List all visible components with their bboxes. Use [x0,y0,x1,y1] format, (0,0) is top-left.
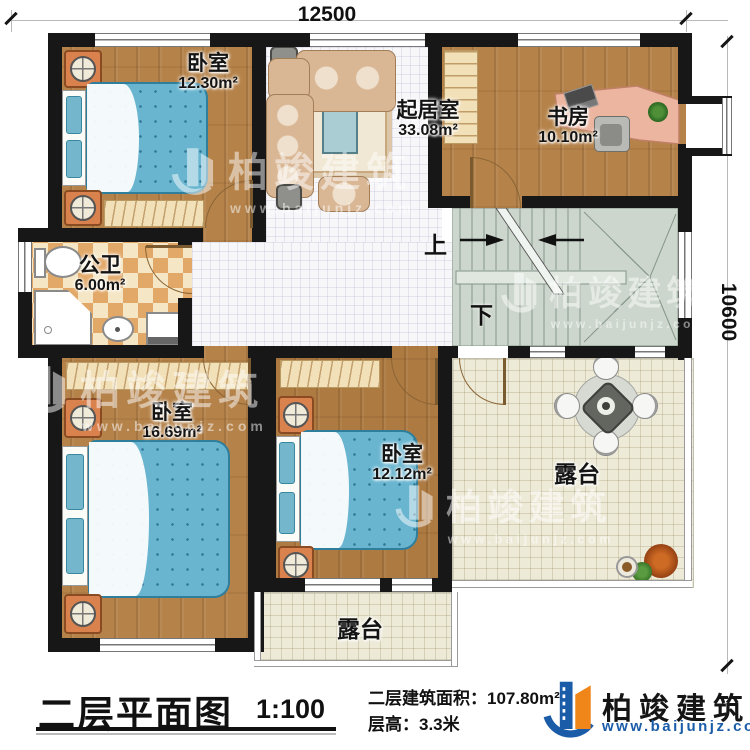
room-label-study: 书房 10.10m² [518,106,618,147]
bay-window-glass [722,98,732,154]
wall [380,578,392,592]
dimension-extension-right [686,10,687,32]
sofa-left [266,94,314,198]
stairs-down-label: 下 [470,296,493,330]
wall [428,196,470,208]
door-leaf [250,180,253,228]
room-label-bedroom-bm: 卧室 12.12m² [352,443,452,484]
wall [432,578,452,592]
pillow [66,518,84,574]
window [18,242,32,292]
window [305,578,380,592]
lamp-icon [70,56,96,82]
window [100,638,215,652]
door-leaf [146,245,192,248]
wall [178,228,192,246]
window [392,578,432,592]
nightstand [64,190,102,226]
wall [48,346,62,652]
railing [451,592,458,666]
pillow [66,454,84,510]
wall [48,33,62,242]
wall [665,346,692,358]
wall [452,346,458,358]
wall [48,638,100,652]
patio-chair [632,393,658,419]
door-leaf [470,157,473,208]
title-underline [36,727,336,731]
pillow [279,492,295,534]
lamp-icon [283,552,309,578]
wall [248,346,276,592]
wardrobe [104,200,204,227]
railing [254,592,261,666]
plant-pot-soil [622,562,632,572]
wall [262,346,392,358]
railing [254,660,458,667]
title-underline-shadow [36,733,336,735]
wall [48,346,204,358]
lamp-icon [70,601,96,627]
wall [522,196,692,208]
floor-height-info: 层高：3.3米 [368,710,460,735]
pillow [66,140,82,178]
pillow [66,96,82,134]
room-label-terrace-right: 露台 [527,462,627,487]
shower-drain [44,326,52,334]
wall [565,346,635,358]
window [678,232,692,318]
lamp-icon [283,402,309,428]
window [635,346,665,358]
bay-window-interior [686,104,724,148]
pillow [279,442,295,484]
room-label-bathroom: 公卫 6.00m² [50,254,150,295]
door-leaf [248,358,251,405]
floor-area-info: 二层建筑面积：107.80m² [368,684,560,709]
window [530,346,565,358]
armchair [318,176,370,212]
dimension-height-label: 10600 [716,272,740,352]
dimension-width-label: 12500 [277,3,377,27]
room-label-terrace-bottom: 露台 [310,617,410,642]
wall [253,228,266,242]
room-label-living: 起居室 33.08m² [378,99,478,140]
scale-label: 1:100 [256,694,325,725]
stairs-up-label: 上 [424,226,447,260]
dimension-extension-left [11,10,12,32]
wall [678,144,692,232]
door-leaf [435,358,438,405]
window [310,33,425,47]
brand-logo-icon [538,676,598,742]
patio-chair [593,430,619,456]
wall [248,578,305,592]
window [95,33,210,47]
room-label-bedroom-tl: 卧室 12.30m² [158,52,258,93]
plant-icon [648,102,668,122]
brand-url: www.baijunjz.com [602,718,750,735]
door-leaf [503,358,506,405]
bed-sheet [87,84,139,192]
wall [678,33,692,104]
lamp-icon [70,195,96,221]
sink-drain [115,327,120,332]
bed-sheet [301,432,349,548]
bed-sheet [89,442,149,596]
nightstand [64,398,102,438]
hallway-floor [192,242,452,346]
room-label-bedroom-bl: 卧室 16.69m² [122,401,222,442]
nightstand [278,396,314,434]
wardrobe [280,360,380,388]
patio-chair [554,393,580,419]
wall [18,228,192,242]
lamp-icon [70,405,96,431]
side-table [276,184,302,210]
window [518,33,640,47]
floor-plan-canvas: 12500 10600 [0,0,750,750]
patio-table-center [602,402,610,410]
railing [684,358,692,586]
railing [452,580,692,588]
wall [508,346,530,358]
nightstand [64,594,102,634]
